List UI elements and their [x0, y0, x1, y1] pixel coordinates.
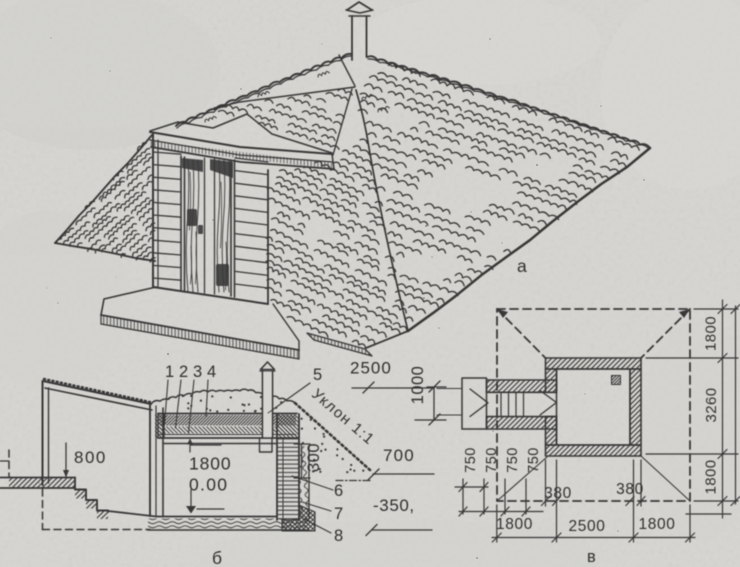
svg-text:380: 380 — [616, 481, 644, 498]
svg-text:380: 380 — [544, 485, 572, 502]
svg-text:б: б — [212, 548, 222, 567]
svg-text:6: 6 — [334, 482, 343, 500]
svg-text:1800: 1800 — [496, 516, 533, 533]
svg-text:3: 3 — [193, 363, 202, 381]
svg-text:8: 8 — [334, 527, 343, 545]
svg-text:7: 7 — [334, 505, 343, 523]
svg-text:1000: 1000 — [409, 366, 427, 405]
svg-text:в: в — [587, 548, 596, 566]
svg-text:5: 5 — [313, 366, 322, 384]
svg-text:4: 4 — [207, 363, 216, 381]
svg-text:-350,: -350, — [373, 496, 415, 515]
svg-text:750: 750 — [484, 447, 500, 473]
svg-text:750: 750 — [505, 447, 521, 473]
svg-text:1800: 1800 — [703, 316, 720, 351]
svg-text:3260: 3260 — [703, 388, 720, 423]
svg-text:1800: 1800 — [189, 454, 232, 474]
svg-text:300: 300 — [305, 443, 323, 472]
svg-text:700: 700 — [383, 446, 415, 465]
svg-text:2500: 2500 — [569, 518, 606, 535]
svg-text:0.00: 0.00 — [189, 475, 228, 495]
svg-text:2500: 2500 — [350, 359, 392, 378]
svg-text:1800: 1800 — [703, 460, 720, 495]
svg-text:750: 750 — [526, 447, 542, 473]
svg-text:а: а — [517, 256, 527, 276]
svg-text:2: 2 — [179, 363, 188, 381]
svg-text:1: 1 — [165, 363, 174, 381]
svg-text:1800: 1800 — [639, 516, 676, 533]
svg-text:750: 750 — [463, 447, 479, 473]
svg-text:800: 800 — [74, 448, 107, 467]
